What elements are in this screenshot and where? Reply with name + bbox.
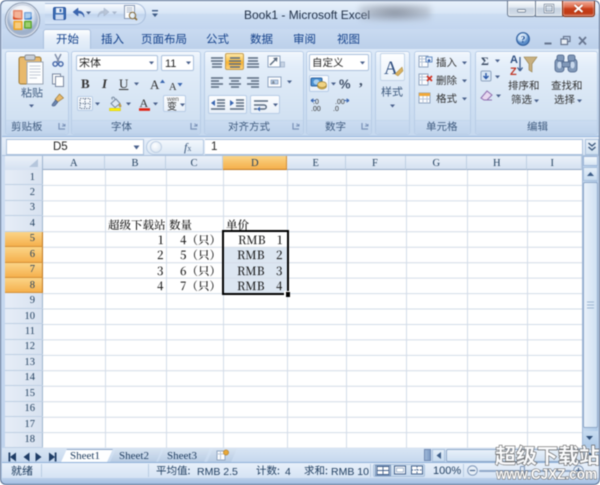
svg-text:A: A xyxy=(510,54,518,66)
svg-text:www.CJXZ.com: www.CJXZ.com xyxy=(496,466,597,483)
svg-text:A: A xyxy=(384,58,398,79)
svg-text:A: A xyxy=(140,96,149,110)
svg-text:,: , xyxy=(359,75,363,89)
svg-text:.00: .00 xyxy=(335,99,345,106)
svg-text:.00: .00 xyxy=(311,106,321,112)
svg-text:A: A xyxy=(150,77,160,91)
svg-text:.0: .0 xyxy=(333,106,339,112)
svg-text:?: ? xyxy=(521,36,526,46)
svg-text:Z: Z xyxy=(510,66,517,77)
svg-text:%: % xyxy=(339,77,351,92)
svg-text:Σ: Σ xyxy=(481,54,489,66)
svg-text:A: A xyxy=(169,82,177,91)
